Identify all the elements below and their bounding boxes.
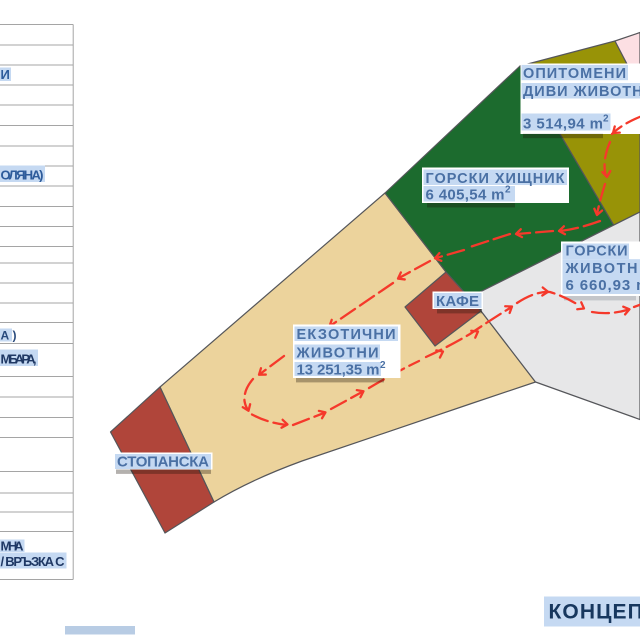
svg-text:ЖИВОТНИ: ЖИВОТНИ bbox=[296, 346, 379, 362]
svg-text:2: 2 bbox=[380, 360, 386, 371]
svg-text:А ): А ) bbox=[1, 329, 17, 343]
svg-text:СТОПАНСКА: СТОПАНСКА bbox=[117, 454, 209, 471]
svg-text:ЖИВОТНИ: ЖИВОТНИ bbox=[565, 261, 640, 277]
svg-text:2: 2 bbox=[603, 114, 609, 125]
svg-text:МНА: МНА bbox=[1, 539, 25, 554]
svg-text:МБАРА,: МБАРА, bbox=[1, 352, 37, 367]
svg-text:КОНЦЕПЦИЯ: КОНЦЕПЦИЯ bbox=[549, 601, 640, 624]
svg-text:ОЛЯНА): ОЛЯНА) bbox=[1, 168, 44, 183]
svg-text:ОПИТОМЕНИ: ОПИТОМЕНИ bbox=[523, 66, 626, 82]
svg-text:ГОРСКИ ХИЩНИК: ГОРСКИ ХИЩНИК bbox=[426, 171, 565, 187]
svg-text:ГОРСКИ: ГОРСКИ bbox=[566, 244, 628, 260]
svg-text:6 660,93 m: 6 660,93 m bbox=[566, 277, 640, 294]
svg-text:3 514,94 m: 3 514,94 m bbox=[523, 116, 603, 133]
svg-text:/ ВРЪЗКА С: / ВРЪЗКА С bbox=[1, 554, 66, 569]
svg-text:И: И bbox=[1, 67, 10, 82]
svg-text:КАФЕ: КАФЕ bbox=[436, 293, 479, 310]
svg-text:6 405,54 m: 6 405,54 m bbox=[426, 187, 505, 204]
svg-text:ДИВИ ЖИВОТНИ: ДИВИ ЖИВОТНИ bbox=[523, 84, 640, 100]
svg-text:ЕКЗОТИЧНИ: ЕКЗОТИЧНИ bbox=[297, 327, 396, 343]
svg-text:2: 2 bbox=[505, 185, 511, 196]
svg-text:13 251,35 m: 13 251,35 m bbox=[297, 362, 380, 379]
